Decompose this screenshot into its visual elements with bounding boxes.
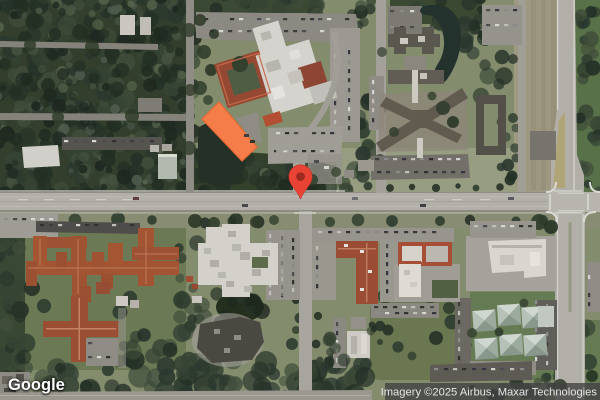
svg-text:Imagery ©2025 Airbus, Maxar Te: Imagery ©2025 Airbus, Maxar Technologies: [381, 387, 598, 399]
